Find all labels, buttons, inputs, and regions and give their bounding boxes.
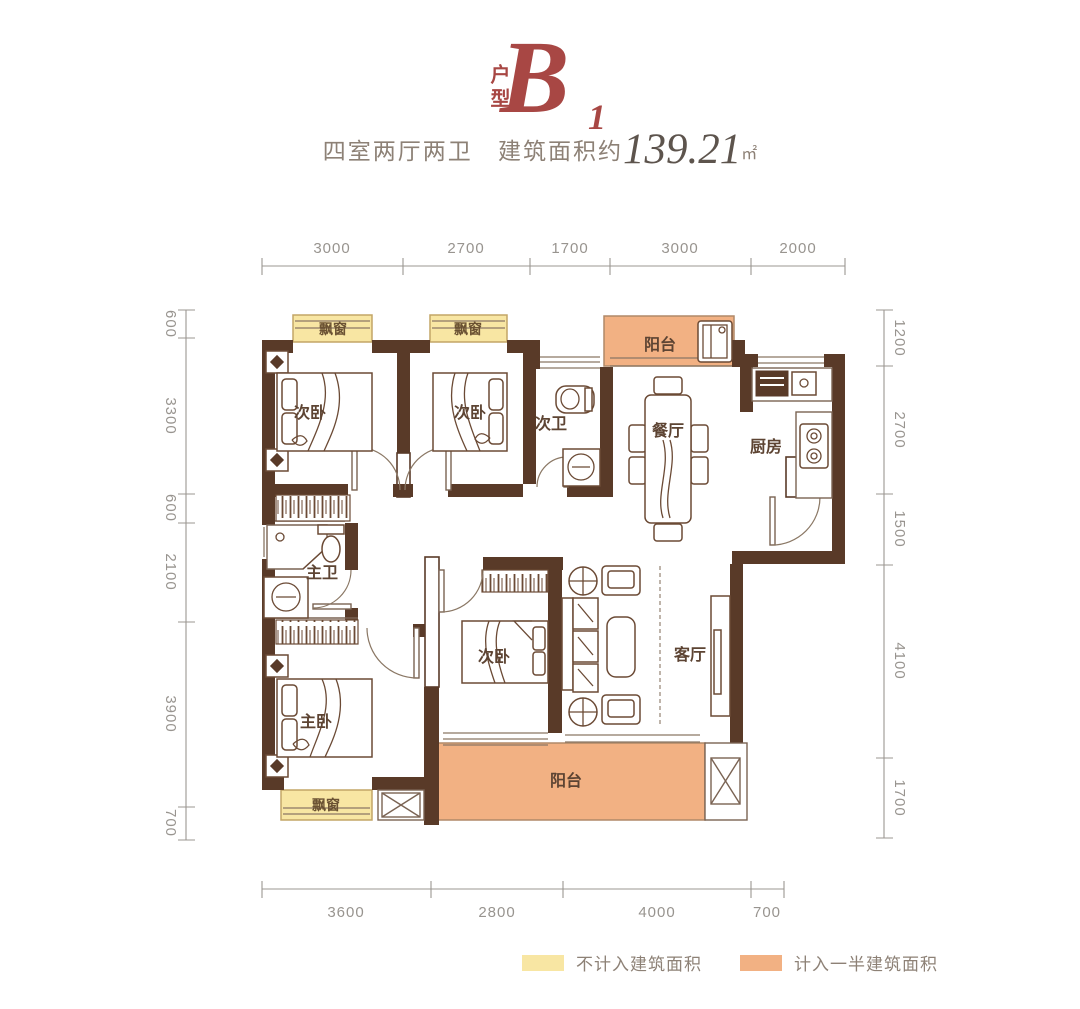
label-dining: 餐厅 bbox=[651, 421, 684, 440]
dim-left-0: 600 bbox=[162, 310, 179, 338]
label-bedroom-1: 次卧 bbox=[294, 403, 326, 422]
label-living: 客厅 bbox=[674, 645, 706, 664]
dim-bottom-2: 4000 bbox=[638, 904, 675, 921]
wardrobe-master bbox=[276, 620, 358, 644]
legend-swatch-yellow bbox=[522, 955, 564, 971]
dim-right-1: 2700 bbox=[891, 411, 908, 448]
legend: 不计入建筑面积 计入一半建筑面积 bbox=[522, 950, 962, 975]
dim-top-3: 3000 bbox=[661, 240, 698, 257]
dim-bottom-1: 2800 bbox=[478, 904, 515, 921]
label-secondary-bath: 次卫 bbox=[535, 414, 567, 433]
dim-top-1: 2700 bbox=[447, 240, 484, 257]
dining-set bbox=[629, 377, 708, 541]
label-kitchen: 厨房 bbox=[750, 437, 782, 456]
dim-bottom-3: 700 bbox=[753, 904, 781, 921]
dim-right-2: 1500 bbox=[891, 510, 908, 547]
dimension-left: 600 3300 600 2100 3900 700 bbox=[162, 310, 195, 840]
dim-left-5: 700 bbox=[162, 809, 179, 837]
dim-bottom-0: 3600 bbox=[327, 904, 364, 921]
label-balcony-bottom: 阳台 bbox=[550, 771, 582, 790]
dim-left-2: 600 bbox=[162, 494, 179, 522]
wardrobe-bedroom3 bbox=[482, 570, 548, 592]
floorplan-page: 户型 B 1 四室两厅两卫 建筑面积约139.21㎡ bbox=[0, 0, 1080, 1009]
dim-left-1: 3300 bbox=[162, 397, 179, 434]
label-balcony-top: 阳台 bbox=[644, 335, 676, 354]
floorplan-svg: 飘窗 飘窗 飘窗 次卧 次卧 次卫 餐厅 厨房 阳台 主卫 次卧 客厅 主卧 阳… bbox=[0, 0, 1080, 1009]
dimension-right: 1200 2700 1500 4100 1700 bbox=[876, 310, 908, 838]
dimension-top: 3000 2700 1700 3000 2000 bbox=[262, 240, 845, 275]
label-bedroom-3: 次卧 bbox=[478, 647, 510, 666]
washing-machine bbox=[698, 321, 732, 362]
sofa-group bbox=[562, 566, 660, 726]
label-master-bedroom: 主卧 bbox=[300, 712, 332, 731]
label-bay-window-1: 飘窗 bbox=[319, 321, 347, 337]
dim-left-4: 3900 bbox=[162, 695, 179, 732]
legend-label-yellow: 不计入建筑面积 bbox=[576, 950, 702, 975]
wardrobe-hall bbox=[276, 495, 350, 521]
label-master-bath: 主卫 bbox=[306, 563, 338, 582]
dim-right-0: 1200 bbox=[891, 319, 908, 356]
secondary-bath-fixtures bbox=[556, 386, 600, 486]
tv-cabinet bbox=[711, 596, 730, 716]
label-bedroom-2: 次卧 bbox=[454, 403, 486, 422]
dim-top-4: 2000 bbox=[779, 240, 816, 257]
dim-right-3: 4100 bbox=[891, 642, 908, 679]
legend-item-yellow: 不计入建筑面积 bbox=[522, 950, 702, 975]
dim-top-2: 1700 bbox=[551, 240, 588, 257]
dim-left-3: 2100 bbox=[162, 553, 179, 590]
legend-item-orange: 计入一半建筑面积 bbox=[740, 950, 938, 975]
dimension-bottom: 3600 2800 4000 700 bbox=[262, 881, 784, 921]
label-bay-window-2: 飘窗 bbox=[454, 321, 482, 337]
dim-right-4: 1700 bbox=[891, 779, 908, 816]
legend-label-orange: 计入一半建筑面积 bbox=[794, 950, 938, 975]
label-bay-window-3: 飘窗 bbox=[312, 797, 340, 813]
dim-top-0: 3000 bbox=[313, 240, 350, 257]
legend-swatch-orange bbox=[740, 955, 782, 971]
